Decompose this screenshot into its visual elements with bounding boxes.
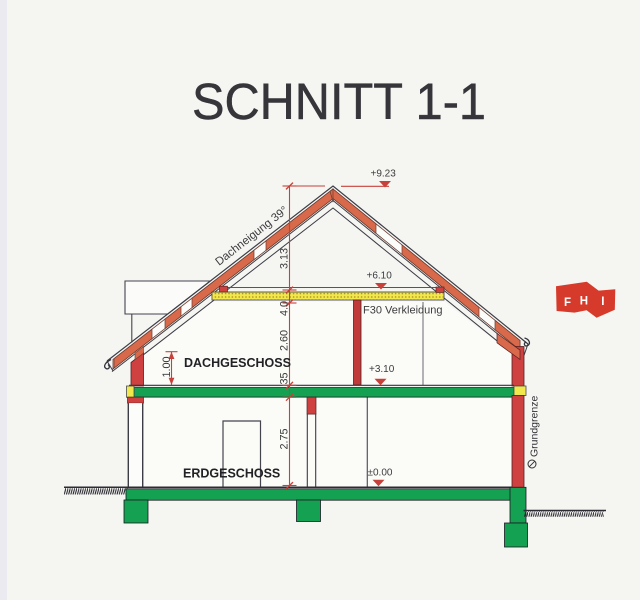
svg-text:2.75: 2.75 [279,428,291,449]
svg-text:3.13: 3.13 [279,248,291,269]
svg-text:4.0: 4.0 [279,301,291,316]
svg-text:2.60: 2.60 [279,330,291,351]
svg-text:SCHNITT 1-1: SCHNITT 1-1 [192,73,486,130]
svg-text:H: H [580,296,588,308]
svg-text:F30 Verkleidung: F30 Verkleidung [363,305,443,317]
svg-text:+6.10: +6.10 [367,271,393,282]
svg-text:+9.23: +9.23 [371,169,397,180]
svg-text:±0.00: ±0.00 [368,468,393,479]
svg-text:1.00: 1.00 [161,356,173,377]
svg-text:ERDGESCHOSS: ERDGESCHOSS [183,467,280,481]
svg-text:I: I [601,296,604,308]
svg-text:35: 35 [279,372,291,384]
svg-text:Grundgrenze: Grundgrenze [529,396,541,457]
svg-text:DACHGESCHOSS: DACHGESCHOSS [184,356,291,370]
svg-text:F: F [564,297,571,309]
svg-text:+3.10: +3.10 [369,364,395,375]
